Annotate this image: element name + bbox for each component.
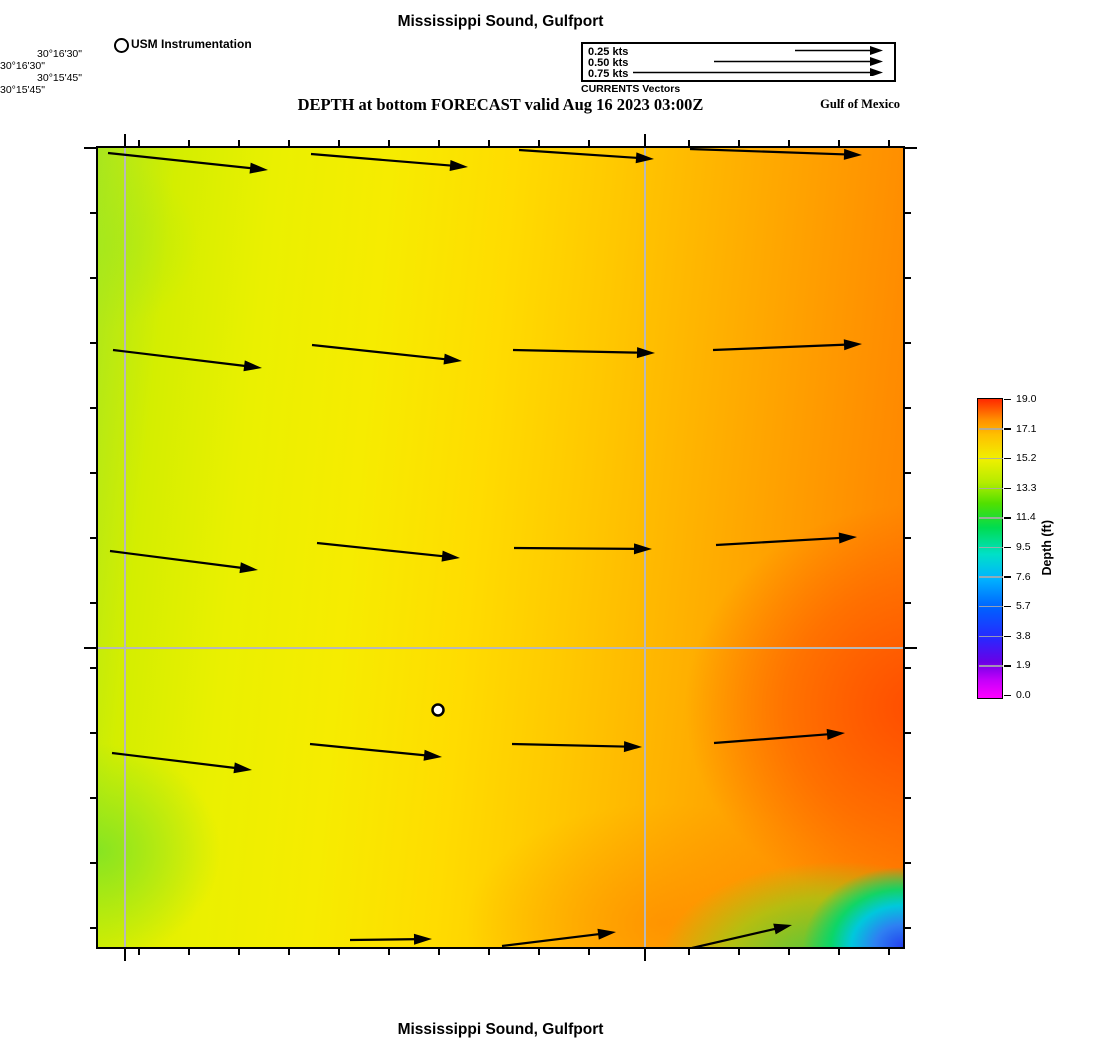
colorbar-tick-label: 3.8: [1016, 630, 1031, 642]
current-vector-arrowhead: [636, 152, 654, 163]
axis-tick: [1004, 458, 1011, 460]
colorbar-tick-label: 9.5: [1016, 541, 1031, 553]
axis-tick: [738, 949, 740, 955]
axis-tick: [1004, 488, 1011, 490]
station-marker: [433, 705, 444, 716]
axis-tick: [838, 949, 840, 955]
current-vector-arrowhead: [870, 46, 883, 55]
axis-tick: [905, 212, 911, 214]
depth-heatmap: [96, 146, 905, 949]
axis-tick: [1004, 636, 1011, 638]
x-axis-tick-label: −89°04'30": [0, 36, 550, 48]
axis-tick: [438, 949, 440, 955]
legend-scale-arrows: [583, 44, 890, 76]
current-vector-arrowhead: [844, 149, 862, 160]
axis-tick: [538, 949, 540, 955]
axis-tick: [644, 949, 646, 961]
axis-tick: [338, 949, 340, 955]
current-vector-arrowhead: [442, 551, 460, 562]
axis-tick: [905, 472, 911, 474]
depth-colorbar: [977, 398, 1003, 699]
footer-title: Mississippi Sound, Gulfport: [96, 1021, 905, 1039]
current-vector-line: [502, 934, 603, 946]
axis-tick: [905, 602, 911, 604]
axis-tick: [84, 147, 96, 149]
current-vector-line: [310, 744, 429, 756]
axis-tick: [124, 134, 126, 146]
axis-tick: [905, 927, 911, 929]
current-vector-line: [692, 928, 780, 947]
axis-tick: [905, 407, 911, 409]
axis-tick: [388, 949, 390, 955]
station-marker-legend-label: USM Instrumentation: [131, 37, 252, 51]
current-vector-arrowhead: [597, 929, 616, 940]
axis-tick: [688, 949, 690, 955]
x-axis-tick-label: −89°05'15": [0, 0, 550, 12]
current-vector-line: [312, 345, 449, 360]
current-vector-arrowhead: [450, 160, 468, 171]
current-vector-line: [690, 149, 849, 155]
axis-tick: [788, 949, 790, 955]
axis-tick: [905, 537, 911, 539]
forecast-plot-page: Mississippi Sound, Gulfport USM Instrume…: [0, 0, 1100, 1050]
current-vector-line: [113, 350, 249, 366]
axis-tick: [905, 667, 911, 669]
current-vector-line: [714, 734, 832, 743]
region-label: Gulf of Mexico: [700, 97, 900, 112]
axis-tick: [488, 949, 490, 955]
axis-tick: [644, 134, 646, 146]
current-vector-line: [716, 538, 844, 545]
current-vector-arrowhead: [424, 750, 442, 761]
axis-tick: [188, 949, 190, 955]
y-axis-tick-label: 30°16'30": [0, 48, 82, 60]
axis-tick: [905, 342, 911, 344]
colorbar-tick-label: 11.4: [1016, 511, 1036, 523]
current-vector-line: [713, 345, 849, 350]
current-vector-line: [350, 939, 419, 940]
colorbar-tick-label: 17.1: [1016, 423, 1036, 435]
axis-tick: [905, 277, 911, 279]
current-vector-line: [108, 153, 255, 169]
axis-tick: [288, 949, 290, 955]
current-vector-arrowhead: [444, 354, 462, 365]
current-vector-arrowhead: [233, 762, 252, 773]
axis-tick: [905, 647, 917, 649]
colorbar-tick-label: 15.2: [1016, 452, 1036, 464]
current-vector-arrowhead: [839, 533, 857, 544]
current-vector-line: [512, 744, 629, 747]
axis-tick: [1004, 576, 1011, 578]
current-vector-arrowhead: [634, 543, 652, 554]
colorbar-tick-label: 19.0: [1016, 393, 1036, 405]
current-vector-arrowhead: [773, 924, 792, 935]
colorbar-axis-label: Depth (ft): [1036, 398, 1058, 697]
currents-vector-legend: 0.25 kts 0.50 kts 0.75 kts: [581, 42, 896, 82]
axis-tick: [124, 949, 126, 961]
current-vector-arrowhead: [827, 729, 845, 740]
axis-tick: [905, 862, 911, 864]
current-vectors-layer: [98, 148, 903, 947]
axis-tick: [888, 949, 890, 955]
current-vector-line: [513, 350, 642, 353]
axis-tick: [905, 147, 917, 149]
colorbar-tick-label: 7.6: [1016, 571, 1031, 583]
axis-tick: [1004, 695, 1011, 697]
colorbar-tick-label: 1.9: [1016, 659, 1031, 671]
current-vector-arrowhead: [250, 163, 268, 174]
station-marker-legend-icon: [114, 38, 129, 53]
axis-tick: [905, 732, 911, 734]
axis-tick: [1004, 547, 1011, 549]
current-vector-line: [311, 154, 455, 166]
axis-tick: [1004, 606, 1011, 608]
axis-tick: [1004, 517, 1011, 519]
y-axis-tick-label: 30°16'30": [0, 60, 1100, 72]
current-vector-arrowhead: [637, 347, 655, 358]
current-vector-arrowhead: [414, 934, 432, 945]
current-vector-line: [514, 548, 639, 549]
axis-tick: [905, 797, 911, 799]
colorbar-tick-label: 5.7: [1016, 600, 1031, 612]
axis-tick: [138, 949, 140, 955]
currents-legend-caption: CURRENTS Vectors: [581, 83, 680, 95]
colorbar-tick-label: 0.0: [1016, 689, 1031, 701]
axis-tick: [238, 949, 240, 955]
colorbar-tick-label: 13.3: [1016, 482, 1036, 494]
current-vector-arrowhead: [870, 57, 883, 66]
current-vector-arrowhead: [870, 68, 883, 76]
axis-tick: [1004, 665, 1011, 667]
y-axis-tick-label: 30°15'45": [0, 72, 82, 84]
current-vector-arrowhead: [624, 741, 642, 752]
current-vector-arrowhead: [844, 339, 862, 350]
axis-tick: [1004, 428, 1011, 430]
axis-tick: [1004, 399, 1011, 401]
current-vector-line: [110, 551, 246, 568]
current-vector-arrowhead: [243, 360, 262, 371]
current-vector-line: [519, 150, 641, 158]
axis-tick: [588, 949, 590, 955]
axis-tick: [84, 647, 96, 649]
current-vector-line: [317, 543, 447, 557]
current-vector-arrowhead: [239, 562, 258, 573]
page-title: Mississippi Sound, Gulfport: [96, 13, 905, 31]
current-vector-line: [112, 753, 239, 768]
